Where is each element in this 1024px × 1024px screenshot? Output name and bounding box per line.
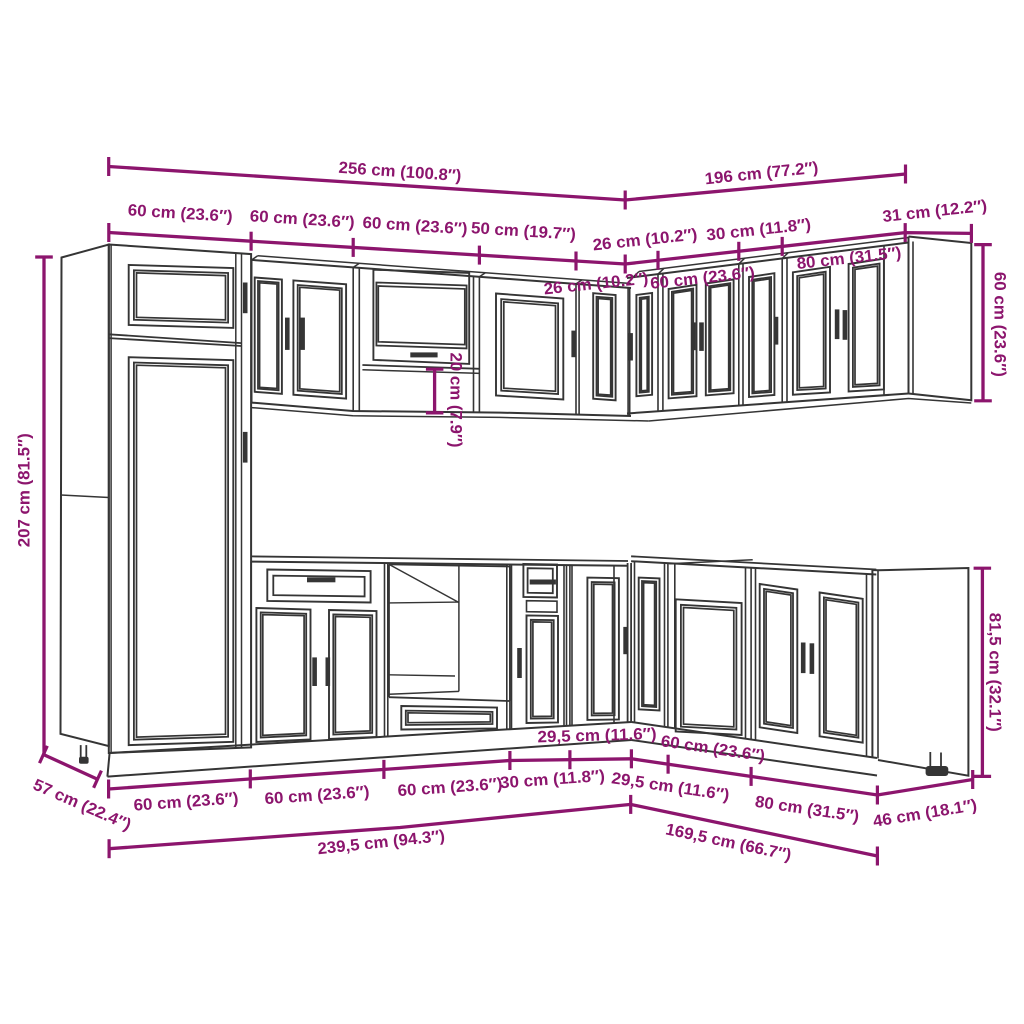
- svg-text:20 cm (7.9″): 20 cm (7.9″): [447, 353, 465, 448]
- svg-text:207 cm (81.5″): 207 cm (81.5″): [16, 433, 34, 547]
- svg-text:60 cm (23.6″): 60 cm (23.6″): [991, 272, 1009, 377]
- svg-text:29,5 cm (11.6″): 29,5 cm (11.6″): [537, 725, 656, 746]
- svg-text:81,5 cm (32.1″): 81,5 cm (32.1″): [985, 613, 1003, 732]
